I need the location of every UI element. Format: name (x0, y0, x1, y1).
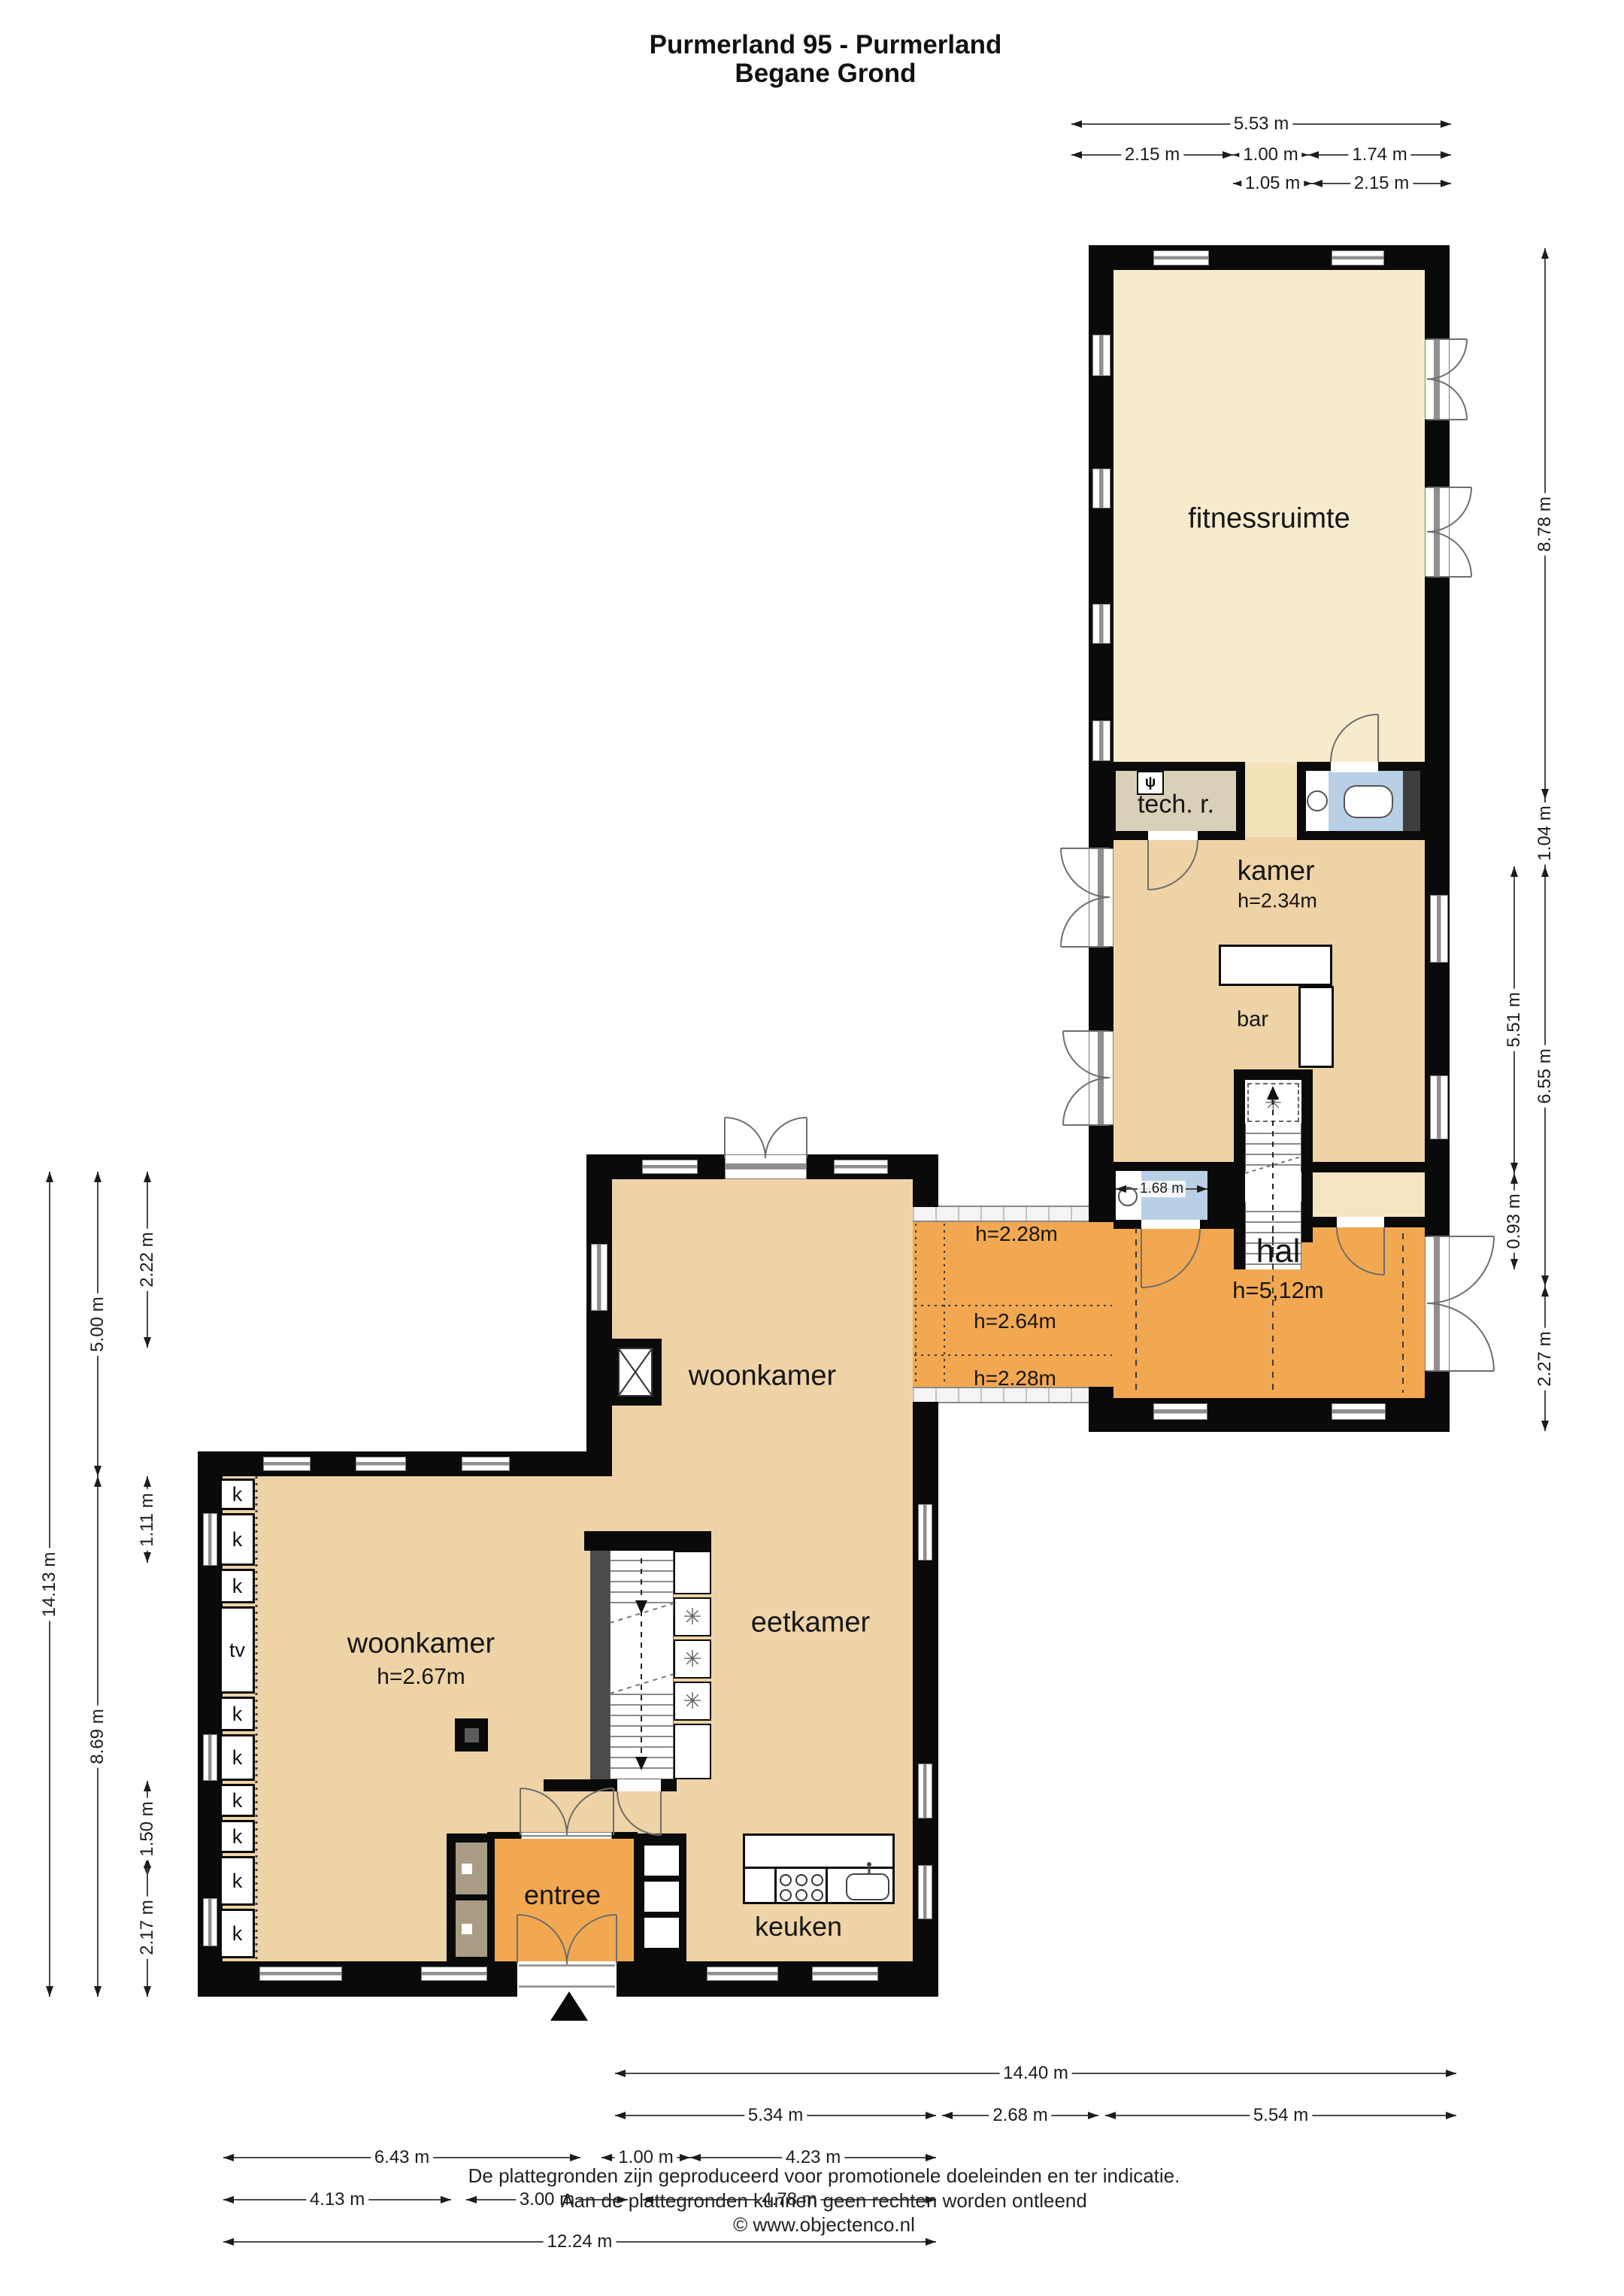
entrance-arrow-icon (550, 1991, 588, 2021)
room-label-woonkamer-boven: woonkamer (689, 1360, 836, 1393)
tap (867, 1862, 871, 1867)
kitchen-sink (847, 1874, 889, 1900)
ceiling-height-dashed-lines (256, 1224, 1403, 1960)
wall-unit-k-1: k (220, 1513, 255, 1566)
footer-line: Aan de plattegronden kunnen geen rechten… (12, 2189, 1624, 2213)
dimension-label: 1.05 m (1241, 173, 1304, 194)
room-label-kamer-height: h=2.34m (1238, 890, 1317, 913)
footer-line: De plattegronden zijn geproduceerd voor … (12, 2164, 1624, 2188)
footer-line: © www.objectenco.nl (12, 2213, 1624, 2237)
wall-unit-k-6: k (220, 1784, 255, 1817)
room-label-fitnessruimte: fitnessruimte (1188, 503, 1350, 535)
dimension-label: 1.68 m (1138, 1181, 1186, 1197)
dimension-label: 2.17 m (137, 1896, 158, 1958)
dimension-label: 5.34 m (744, 2105, 807, 2126)
room-label-corridor-h2: h=2.64m (974, 1309, 1056, 1333)
dimension-label: 2.15 m (1121, 144, 1183, 165)
room-label-entree: entree (524, 1879, 601, 1911)
dimension-label: 14.13 m (39, 1548, 60, 1621)
room-label-kamer: kamer (1238, 855, 1315, 887)
dimension-label: 1.11 m (137, 1489, 158, 1551)
dimension-label: 2.15 m (1350, 173, 1413, 194)
dimension-label: 6.55 m (1535, 1045, 1556, 1107)
room-label-woonkamer: woonkamer (347, 1628, 495, 1661)
dimension-label: 5.53 m (1230, 114, 1292, 135)
wall-unit-k-2: k (220, 1569, 255, 1603)
wall-unit-k-7: k (220, 1820, 255, 1853)
dimension-label: 2.68 m (989, 2105, 1051, 2126)
floorplan-canvas: Purmerland 95 - Purmerland Begane Grond … (0, 0, 1624, 2296)
room-label-eetkamer: eetkamer (751, 1607, 870, 1639)
wall-unit-k-4: k (220, 1697, 255, 1731)
fixtures (550, 786, 1392, 2021)
stove-burners (780, 1875, 823, 1900)
room-label-woonkamer-height: h=2.67m (377, 1664, 465, 1690)
room-label-tech-r: tech. r. (1138, 790, 1214, 820)
dimension-label: 8.69 m (87, 1705, 108, 1767)
dimension-label: 1.04 m (1535, 802, 1556, 864)
room-label-keuken: keuken (755, 1911, 842, 1943)
dimension-label: 1.50 m (137, 1797, 158, 1860)
room-label-corridor-h1: h=2.28m (975, 1222, 1058, 1246)
dimension-label: 8.78 m (1535, 493, 1556, 555)
room-label-bar: bar (1237, 1008, 1268, 1033)
dimension-label: 5.00 m (87, 1293, 108, 1355)
wall-unit-k-0: k (220, 1479, 255, 1510)
dimension-label: 1.00 m (1239, 144, 1301, 165)
room-label-corridor-h3: h=2.28m (974, 1366, 1056, 1391)
wall-unit-k-9: k (220, 1909, 255, 1958)
dimension-label: 0.93 m (1504, 1190, 1525, 1252)
dimension-label: 14.40 m (999, 2063, 1072, 2084)
toilet-bowl (1344, 786, 1392, 817)
wall-unit-k-5: k (220, 1734, 255, 1781)
dimension-label: 2.22 m (137, 1228, 158, 1291)
room-label-hal-height: h=5,12m (1232, 1277, 1324, 1304)
dimension-label: 2.27 m (1535, 1327, 1556, 1390)
sink (1307, 791, 1327, 811)
door-swing-arcs (517, 339, 1494, 1964)
room-label-hal: hal (1256, 1233, 1301, 1270)
wall-unit-tv-3: tv (220, 1606, 255, 1694)
wall-unit-k-8: k (220, 1856, 255, 1906)
dimension-label: 1.74 m (1348, 144, 1410, 165)
dimension-label: 5.54 m (1250, 2105, 1312, 2126)
dimension-label: 5.51 m (1504, 988, 1525, 1051)
